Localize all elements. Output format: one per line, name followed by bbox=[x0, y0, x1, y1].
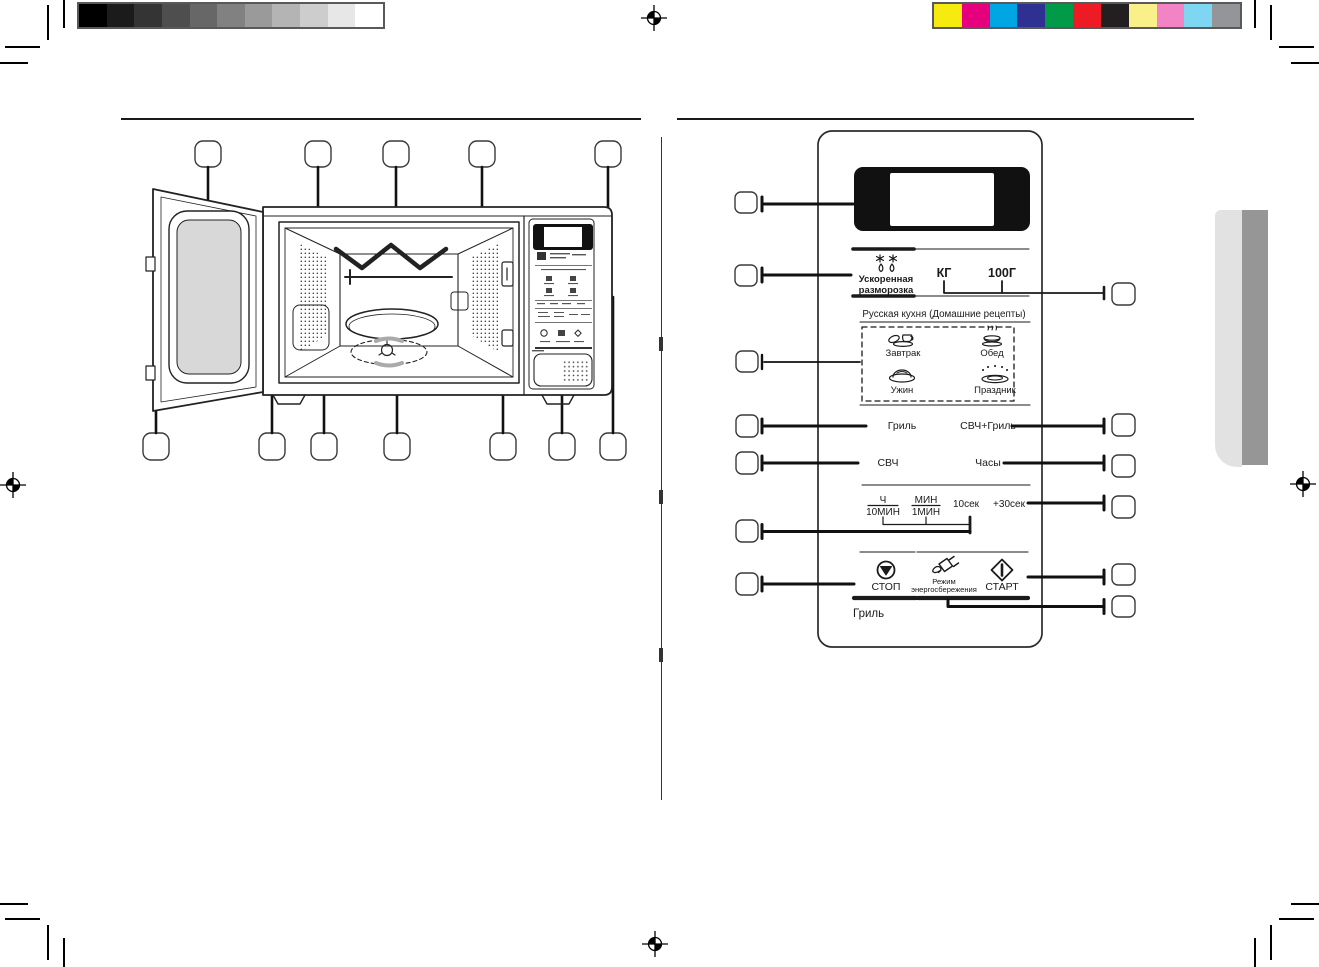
crop-mark bbox=[5, 918, 40, 920]
callout-box bbox=[1112, 564, 1135, 585]
calibration-swatch bbox=[79, 4, 107, 27]
recipe-breakfast-label: Завтрак bbox=[886, 348, 922, 359]
power-plug-icon bbox=[933, 557, 959, 573]
calibration-swatch bbox=[1184, 4, 1212, 27]
crop-mark bbox=[1279, 46, 1314, 48]
diamond-start-icon bbox=[992, 560, 1013, 581]
registration-mark-icon bbox=[635, 924, 675, 964]
callout-box bbox=[1112, 596, 1135, 617]
registration-mark-icon bbox=[0, 465, 33, 505]
calibration-swatch bbox=[1017, 4, 1045, 27]
calibration-swatch bbox=[107, 4, 135, 27]
calibration-swatch bbox=[1073, 4, 1101, 27]
callout-boxes-top bbox=[195, 141, 621, 167]
plus30-label: +30сек bbox=[993, 499, 1026, 510]
door-window-glass bbox=[177, 220, 241, 374]
clock-button-label: Часы bbox=[975, 457, 1001, 469]
defrost-label-line1: Ускоренная bbox=[859, 274, 913, 285]
crop-mark bbox=[1270, 5, 1272, 40]
callout-box bbox=[1112, 455, 1135, 477]
crop-mark bbox=[63, 938, 65, 967]
circle-triangle-stop-icon bbox=[878, 562, 895, 579]
callout-box bbox=[384, 433, 410, 460]
display-window bbox=[854, 167, 1030, 231]
calibration-swatch bbox=[1157, 4, 1185, 27]
crop-mark bbox=[1291, 62, 1319, 64]
min10-label: 10МИН bbox=[866, 507, 900, 518]
callout-box bbox=[736, 520, 758, 542]
callout-box bbox=[736, 452, 758, 474]
calibration-swatch bbox=[1101, 4, 1129, 27]
cup-croissant-icon bbox=[888, 334, 913, 346]
recipe-dinner-label: Ужин bbox=[891, 385, 914, 396]
crop-mark bbox=[1279, 918, 1314, 920]
g100-button-label: 100Г bbox=[988, 266, 1016, 280]
calibration-swatch bbox=[245, 4, 273, 27]
registration-mark-icon bbox=[1283, 464, 1319, 504]
callout-box bbox=[1112, 496, 1135, 518]
eco-button-label-line2: энергосбережения bbox=[911, 585, 977, 594]
covered-dish-icon bbox=[890, 370, 915, 382]
callout-box bbox=[735, 192, 757, 213]
calibration-swatch bbox=[1212, 4, 1240, 27]
grill-button-label: Гриль bbox=[888, 420, 917, 432]
crop-mark bbox=[47, 925, 49, 960]
crop-mark bbox=[47, 5, 49, 40]
callout-box bbox=[735, 265, 757, 286]
right-vent bbox=[472, 244, 498, 352]
festive-platter-icon bbox=[982, 366, 1008, 383]
calibration-swatch bbox=[1045, 4, 1073, 27]
callout-box bbox=[595, 141, 621, 167]
section-thumb-tab-shadow bbox=[1242, 210, 1268, 465]
manual-page: Ускоренная разморозка КГ 100Г Русская ку… bbox=[0, 0, 1319, 967]
callout-box bbox=[736, 351, 758, 372]
mw-button-label: СВЧ bbox=[877, 457, 898, 469]
crop-mark bbox=[1254, 0, 1256, 28]
callout-box bbox=[259, 433, 285, 460]
callout-box bbox=[1112, 414, 1135, 436]
minutes-label: МИН bbox=[915, 495, 938, 506]
callout-box bbox=[549, 433, 575, 460]
color-calibration-bar bbox=[932, 2, 1242, 29]
crop-mark bbox=[1270, 925, 1272, 960]
callout-box bbox=[383, 141, 409, 167]
callout-box bbox=[195, 141, 221, 167]
calibration-swatch bbox=[217, 4, 245, 27]
callout-box bbox=[143, 433, 169, 460]
sec10-label: 10сек bbox=[953, 499, 980, 510]
calibration-swatch bbox=[162, 4, 190, 27]
panel-model-label: Гриль bbox=[853, 608, 884, 620]
crop-mark bbox=[0, 62, 28, 64]
calibration-swatch bbox=[934, 4, 962, 27]
calibration-swatch bbox=[300, 4, 328, 27]
door-hinge bbox=[146, 366, 155, 380]
start-button-label: СТАРТ bbox=[985, 581, 1019, 593]
recipe-lunch-label: Обед bbox=[980, 348, 1004, 359]
crop-mark bbox=[0, 903, 28, 905]
crop-mark bbox=[63, 0, 65, 28]
crop-mark bbox=[5, 46, 40, 48]
calibration-swatch bbox=[190, 4, 218, 27]
stop-button-label: СТОП bbox=[872, 581, 901, 593]
callout-box bbox=[469, 141, 495, 167]
mw-grill-button-label: СВЧ+Гриль bbox=[960, 420, 1016, 432]
calibration-swatch bbox=[962, 4, 990, 27]
control-panel-diagram: Ускоренная разморозка КГ 100Г Русская ку… bbox=[660, 120, 1220, 665]
calibration-swatch bbox=[990, 4, 1018, 27]
oven-door bbox=[146, 189, 263, 411]
callout-boxes-bottom bbox=[143, 433, 626, 460]
snowflakes-drops-icon bbox=[877, 255, 897, 272]
defrost-label-line2: разморозка bbox=[859, 285, 914, 296]
calibration-swatch bbox=[272, 4, 300, 27]
callout-box bbox=[490, 433, 516, 460]
calibration-swatch bbox=[134, 4, 162, 27]
oven-diagram bbox=[100, 130, 660, 480]
steaming-pot-icon bbox=[983, 326, 1002, 346]
calibration-swatch bbox=[1129, 4, 1157, 27]
crop-mark bbox=[1254, 938, 1256, 967]
crop-mark bbox=[1291, 903, 1319, 905]
callout-box bbox=[1112, 283, 1135, 305]
min1-label: 1МИН bbox=[912, 507, 940, 518]
left-page-header-rule bbox=[121, 118, 641, 120]
recipes-title: Русская кухня (Домашние рецепты) bbox=[862, 309, 1025, 320]
calibration-swatch bbox=[355, 4, 383, 27]
left-vent bbox=[300, 244, 326, 352]
callout-box bbox=[600, 433, 626, 460]
recipe-holiday-label: Праздник bbox=[974, 385, 1017, 396]
callout-box bbox=[736, 573, 758, 595]
kg-button-label: КГ bbox=[937, 266, 952, 280]
registration-mark-icon bbox=[634, 0, 674, 38]
callout-box bbox=[311, 433, 337, 460]
grayscale-calibration-bar bbox=[77, 2, 385, 29]
hours-label: Ч bbox=[880, 495, 887, 506]
calibration-swatch bbox=[328, 4, 356, 27]
callout-box bbox=[736, 415, 758, 437]
callout-box bbox=[305, 141, 331, 167]
door-hinge bbox=[146, 257, 155, 271]
